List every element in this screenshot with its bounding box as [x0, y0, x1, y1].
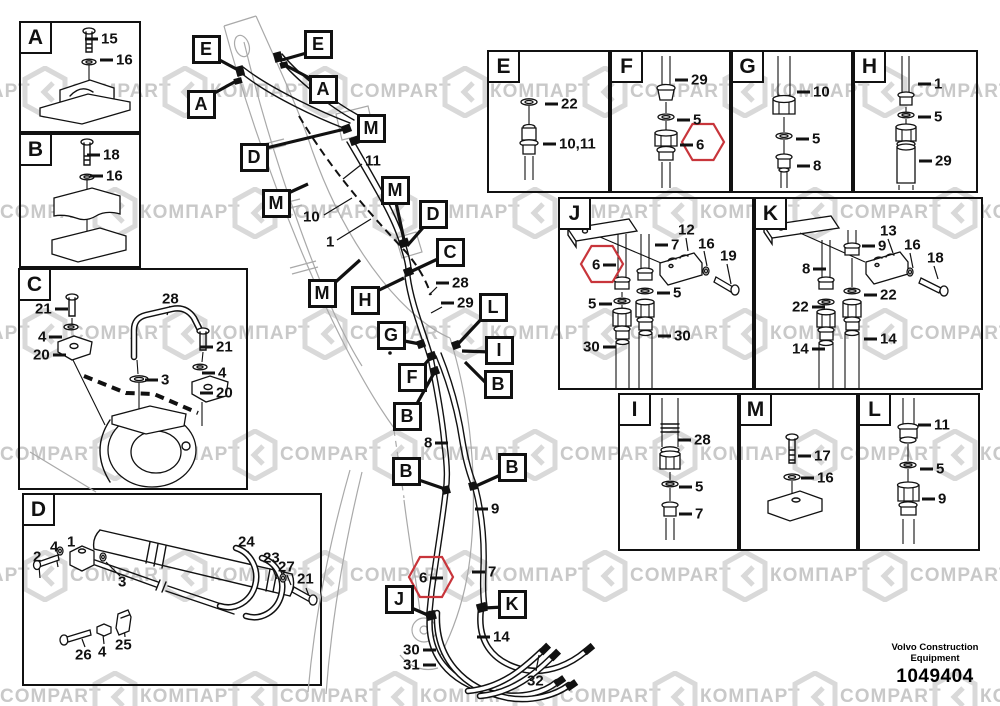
panel-g-label-5: 5 — [796, 131, 820, 148]
callout-i: I — [485, 336, 514, 365]
part-number: 9 — [878, 238, 886, 255]
main-label-8: 8 — [424, 435, 448, 452]
leader-dash — [677, 119, 690, 121]
part-number: 29 — [935, 153, 952, 170]
leader-dash — [658, 335, 671, 337]
part-number: 22 — [880, 287, 897, 304]
callout-b: B — [498, 453, 527, 482]
callout-a: A — [309, 75, 338, 104]
leader-dash — [436, 282, 449, 284]
panel-e-label-22: 22 — [545, 96, 578, 113]
callout-m: M — [308, 279, 337, 308]
leader-dash — [679, 486, 692, 488]
part-number: 5 — [936, 461, 944, 478]
part-number: 10 — [813, 84, 830, 101]
panel-b-label-18: 18 — [87, 147, 120, 164]
panel-m-label-17: 17 — [798, 448, 831, 465]
panel-j-label-16: 16 — [698, 236, 715, 253]
panel-letter-b: B — [19, 133, 52, 166]
panel-c-label-3: 3 — [145, 372, 169, 389]
callout-m: M — [262, 189, 291, 218]
leader-dash — [545, 103, 558, 105]
leader-dash — [919, 160, 932, 162]
panel-c-label-21: 21 — [200, 339, 233, 356]
panel-h-label-29: 29 — [919, 153, 952, 170]
part-number: 27 — [278, 559, 295, 576]
panel-d-label-4: 4 — [50, 539, 58, 556]
leader-dash — [87, 154, 100, 156]
panel-l-label-5: 5 — [920, 461, 944, 478]
callout-e: E — [192, 35, 221, 64]
brand-line1: Volvo Construction — [865, 642, 1000, 653]
part-number: 28 — [694, 432, 711, 449]
panel-i-label-7: 7 — [679, 506, 703, 523]
panel-d-label-3: 3 — [118, 574, 126, 591]
panel-d-drawing — [34, 530, 318, 645]
leader-dash — [543, 143, 556, 145]
panel-k-label-8: 8 — [802, 261, 826, 278]
part-number: 6 — [419, 570, 427, 587]
leader-dash — [918, 424, 931, 426]
panel-d-label-2: 2 — [33, 549, 41, 566]
callout-m: M — [381, 176, 410, 205]
panel-k-label-22: 22 — [864, 287, 897, 304]
leader-dash — [862, 245, 875, 247]
part-number: 16 — [904, 237, 921, 254]
leader-dash — [801, 477, 814, 479]
callout-k: K — [498, 590, 527, 619]
part-number: 4 — [218, 365, 226, 382]
panel-k-label-18: 18 — [927, 250, 944, 267]
panel-c-label-28: 28 — [162, 291, 179, 308]
leader-dash — [55, 308, 68, 310]
panel-j-label-5: 5 — [657, 285, 681, 302]
callout-d: D — [240, 143, 269, 172]
part-number: 4 — [38, 329, 46, 346]
part-number: 14 — [493, 629, 510, 646]
part-number: 28 — [162, 291, 179, 308]
part-number: 22 — [561, 96, 578, 113]
panel-d-label-24: 24 — [238, 534, 255, 551]
main-label-11: 11 — [365, 153, 381, 170]
part-number: 7 — [671, 237, 679, 254]
panel-l-label-11: 11 — [918, 417, 950, 434]
main-label-14: 14 — [477, 629, 510, 646]
panel-g-label-8: 8 — [797, 158, 821, 175]
footer: Volvo Construction Equipment 1049404 — [865, 642, 1000, 688]
panel-letter-i: I — [618, 393, 651, 426]
part-number: 28 — [452, 275, 469, 292]
part-number: 16 — [698, 236, 715, 253]
part-number: 31 — [403, 657, 420, 674]
main-label-29: 29 — [441, 295, 474, 312]
leader-dash — [100, 59, 113, 61]
part-number: 4 — [50, 539, 58, 556]
part-number: 20 — [216, 385, 233, 402]
panel-j-label-7: 7 — [655, 237, 679, 254]
leader-dash — [675, 79, 688, 81]
leader-dash — [812, 306, 825, 308]
leader-dash — [90, 175, 103, 177]
part-number: 17 — [814, 448, 831, 465]
leader-dash — [678, 439, 691, 441]
callout-b: B — [392, 457, 421, 486]
leader-dash — [603, 346, 616, 348]
panel-g-label-10: 10 — [797, 84, 830, 101]
part-number: 20 — [33, 347, 50, 364]
panel-d-label-25: 25 — [115, 637, 132, 654]
panel-j-label-19: 19 — [720, 248, 737, 265]
panel-letter-a: A — [19, 21, 52, 54]
diagram-page: КОМПАРТCOMPARTКОМПАРТCOMPARTКОМПАРТCOMPA… — [0, 0, 1000, 706]
part-number: 16 — [116, 52, 133, 69]
part-number: 11 — [365, 153, 381, 170]
leader-dash — [200, 392, 213, 394]
part-number: 30 — [674, 328, 691, 345]
leader-dash — [797, 91, 810, 93]
part-number: 14 — [792, 341, 809, 358]
panel-k-label-16: 16 — [904, 237, 921, 254]
panel-j-label-30: 30 — [583, 339, 616, 356]
panel-letter-l: L — [858, 393, 891, 426]
callout-f: F — [398, 363, 427, 392]
part-number: 1 — [326, 234, 334, 251]
panel-d-label-4: 4 — [98, 644, 106, 661]
panel-letter-h: H — [853, 50, 886, 83]
leader-dash — [441, 302, 454, 304]
panel-f-label-5: 5 — [677, 112, 701, 129]
panel-j-label-5: 5 — [588, 296, 612, 313]
leader-dash — [796, 138, 809, 140]
leader-dash — [812, 348, 825, 350]
main-label-32: 32 — [527, 673, 544, 690]
leader-dash — [475, 508, 488, 510]
part-number: 16 — [106, 168, 123, 185]
panel-c-label-4: 4 — [202, 365, 226, 382]
brand-line2: Equipment — [865, 653, 1000, 664]
leader-dash — [922, 498, 935, 500]
panel-c-label-20: 20 — [33, 347, 66, 364]
main-label-9: 9 — [475, 501, 499, 518]
leader-dash — [49, 336, 62, 338]
callout-d: D — [419, 200, 448, 229]
leader-dash — [864, 338, 877, 340]
panel-f-label-29: 29 — [675, 72, 708, 89]
panel-letter-e: E — [487, 50, 520, 83]
panel-g-drawing — [773, 56, 795, 188]
part-number: 14 — [880, 331, 897, 348]
panel-d-label-1: 1 — [67, 534, 75, 551]
part-number: 5 — [693, 112, 701, 129]
panel-e-label-10,11: 10,11 — [543, 136, 596, 153]
part-number: 7 — [695, 506, 703, 523]
part-number: 21 — [216, 339, 233, 356]
leader-dash — [200, 346, 213, 348]
part-number: 22 — [792, 299, 809, 316]
part-number: 10,11 — [559, 136, 596, 153]
part-number: 8 — [813, 158, 821, 175]
part-number: 5 — [588, 296, 596, 313]
leader-dash — [655, 244, 668, 246]
panel-e-drawing — [520, 99, 538, 180]
leader-dash — [430, 577, 443, 579]
main-label-28: 28 — [436, 275, 469, 292]
leader-dash — [798, 455, 811, 457]
panel-letter-j: J — [558, 197, 591, 230]
part-number: 21 — [35, 301, 52, 318]
panel-h-label-1: 1 — [918, 76, 942, 93]
panel-m-label-16: 16 — [801, 470, 834, 487]
callout-h: H — [351, 286, 380, 315]
callout-c: C — [436, 238, 465, 267]
leader-dash — [435, 442, 448, 444]
leader-dash — [864, 294, 877, 296]
callout-e: E — [304, 30, 333, 59]
panel-h-label-5: 5 — [918, 109, 942, 126]
part-number: 6 — [592, 257, 600, 274]
part-number: 8 — [802, 261, 810, 278]
panel-letter-k: K — [754, 197, 787, 230]
part-number: 5 — [934, 109, 942, 126]
panel-i-label-28: 28 — [678, 432, 711, 449]
part-number: 21 — [297, 571, 314, 588]
part-number: 12 — [678, 222, 695, 239]
panel-k-label-22: 22 — [792, 299, 825, 316]
leader-dash — [477, 636, 490, 638]
panel-a-label-15: 15 — [85, 31, 118, 48]
part-number: 26 — [75, 647, 92, 664]
panel-c-label-20: 20 — [200, 385, 233, 402]
part-number: 7 — [488, 564, 496, 581]
panel-letter-c: C — [18, 268, 51, 301]
panel-i-label-5: 5 — [679, 479, 703, 496]
panel-f-label-6: 6 — [680, 137, 704, 154]
leader-dash — [202, 372, 215, 374]
leader-dash — [53, 354, 66, 356]
leader-dash — [85, 38, 98, 40]
part-number: 9 — [938, 491, 946, 508]
main-label-1: 1 — [326, 234, 334, 251]
panel-k-label-9: 9 — [862, 238, 886, 255]
part-number: 5 — [673, 285, 681, 302]
leader-dash — [918, 116, 931, 118]
part-number: 9 — [491, 501, 499, 518]
leader-dash — [599, 303, 612, 305]
panel-a-label-16: 16 — [100, 52, 133, 69]
leader-dash — [918, 83, 931, 85]
panel-letter-g: G — [731, 50, 764, 83]
panel-d-label-21: 21 — [297, 571, 314, 588]
main-label-31: 31 — [403, 657, 436, 674]
panel-d-label-27: 27 — [278, 559, 295, 576]
leader-dash — [920, 468, 933, 470]
part-number: 1 — [67, 534, 75, 551]
leader-dash — [145, 379, 158, 381]
part-number: 11 — [934, 417, 950, 434]
part-number: 25 — [115, 637, 132, 654]
panel-c-label-4: 4 — [38, 329, 62, 346]
callout-l: L — [479, 293, 508, 322]
leader-dash — [657, 292, 670, 294]
panel-h-drawing — [896, 56, 916, 190]
drawing-number: 1049404 — [865, 666, 1000, 688]
callout-m: M — [357, 114, 386, 143]
main-label-10: 10 — [303, 209, 320, 226]
panel-letter-f: F — [610, 50, 643, 83]
leader-dash — [472, 571, 485, 573]
panel-j-label-30: 30 — [658, 328, 691, 345]
part-number: 6 — [696, 137, 704, 154]
callout-b: B — [484, 370, 513, 399]
panel-l-label-9: 9 — [922, 491, 946, 508]
part-number: 18 — [927, 250, 944, 267]
part-number: 4 — [98, 644, 106, 661]
part-number: 2 — [33, 549, 41, 566]
panel-j-label-12: 12 — [678, 222, 695, 239]
panel-b-label-16: 16 — [90, 168, 123, 185]
panel-c-drawing — [30, 294, 228, 492]
main-label-6: 6 — [419, 570, 443, 587]
callout-j: J — [385, 585, 414, 614]
panel-j-label-6: 6 — [592, 257, 616, 274]
part-number: 15 — [101, 31, 118, 48]
leader-dash — [603, 264, 616, 266]
part-number: 24 — [238, 534, 255, 551]
part-number: 19 — [720, 248, 737, 265]
callout-b: B — [393, 402, 422, 431]
part-number: 5 — [812, 131, 820, 148]
leader-dash — [679, 513, 692, 515]
panel-l-drawing — [898, 398, 920, 544]
part-number: 3 — [118, 574, 126, 591]
part-number: 29 — [691, 72, 708, 89]
part-number: 3 — [161, 372, 169, 389]
leader-dash — [813, 268, 826, 270]
part-number: 5 — [695, 479, 703, 496]
part-number: 18 — [103, 147, 120, 164]
part-number: 29 — [457, 295, 474, 312]
panel-f-drawing — [655, 56, 677, 188]
part-number: 32 — [527, 673, 544, 690]
panel-letter-m: M — [739, 393, 772, 426]
part-number: 8 — [424, 435, 432, 452]
part-number: 1 — [934, 76, 942, 93]
panel-c-label-21: 21 — [35, 301, 68, 318]
callout-g: G — [377, 321, 406, 350]
panel-k-label-14: 14 — [864, 331, 897, 348]
panel-k-label-14: 14 — [792, 341, 825, 358]
leader-dash — [423, 649, 436, 651]
panel-i-drawing — [660, 398, 680, 540]
main-label-7: 7 — [472, 564, 496, 581]
leader-dash — [797, 165, 810, 167]
panel-letter-d: D — [22, 493, 55, 526]
part-number: 10 — [303, 209, 320, 226]
part-number: 30 — [583, 339, 600, 356]
callout-a: A — [187, 90, 216, 119]
leader-dash — [423, 664, 436, 666]
part-number: 16 — [817, 470, 834, 487]
panel-d-label-26: 26 — [75, 647, 92, 664]
leader-dash — [680, 144, 693, 146]
